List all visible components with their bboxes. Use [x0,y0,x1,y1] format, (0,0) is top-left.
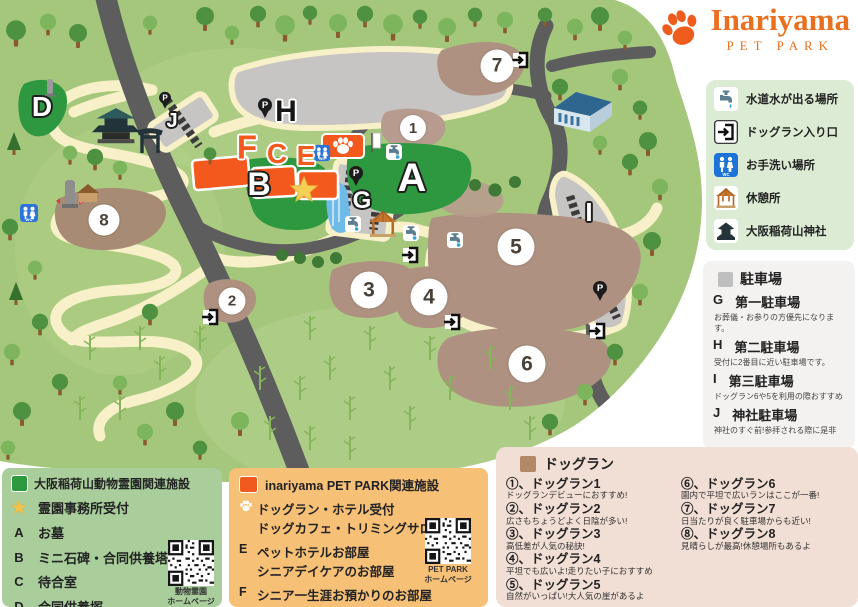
parking-name: 神社駐車場 [732,405,797,424]
parking-item-i: I第三駐車場 ドッグラン6や5を利用の際おすすめ [710,371,848,402]
parking-note: お葬儀・お参りの方優先になります。 [714,312,848,334]
map-label-d[interactable]: D [32,93,52,121]
parking-legend-title: 駐車場 [740,269,782,289]
dogrun-entrance-icon [512,53,527,67]
map-label-f[interactable]: F [237,131,257,164]
cemetery-name: 合同供養塚 [38,597,103,607]
dogrun-title: ⑦、ドッグラン7 [681,502,848,516]
map-marker-dogrun-3[interactable]: 3 [351,272,388,309]
parking-legend-panel: 駐車場 G第一駐車場 お葬儀・お参りの方優先になります。 H第二駐車場 受付に2… [703,261,855,449]
dogrun-title: ①、ドッグラン1 [506,477,673,491]
dogrun-entrance-icon [202,310,217,324]
dogrun-note: 日当たりが良く駐車場からも近い! [681,517,848,527]
dogrun-title: ⑥、ドッグラン6 [681,477,848,491]
map-label-i[interactable]: I [585,199,592,225]
petpark-name: シニア一生涯お預かりのお部屋 [257,585,432,604]
map-label-j[interactable]: J [166,111,177,131]
parking-code: H [713,337,722,356]
restroom-icon [20,204,38,222]
legend-item-water: 水道水が出る場所 [714,87,846,111]
map-marker-dogrun-6[interactable]: 6 [509,346,546,383]
dogrun-color-swatch [520,456,536,472]
dogrun-note: 高低差が人気の秘訣! [506,542,673,552]
logo-subtitle: PET PARK [711,38,851,54]
parking-code: J [713,405,720,424]
parking-item-h: H第二駐車場 受付に2番目に近い駐車場です。 [710,337,848,368]
cemetery-color-swatch [11,475,28,492]
petpark-name2: シニアデイケアのお部屋 [257,561,395,580]
parking-item-g: G第一駐車場 お葬儀・お参りの方優先になります。 [710,292,848,334]
qr-code-pet-park [425,518,471,564]
legend-label: ドッグラン入り口 [746,124,838,140]
facility-legend-panel: 水道水が出る場所 ドッグラン入り口 WC お手洗い場所 休憩所 大阪稲荷山神社 [706,80,854,250]
dogrun-title: ⑧、ドッグラン8 [681,527,848,541]
petpark-legend-header: inariyama PET PARK関連施設 [239,475,478,494]
map-label-c[interactable]: C [267,140,287,168]
cemetery-name: 待合室 [38,572,77,591]
legend-item-entrance: ドッグラン入り口 [714,120,846,144]
dogrun-title: ④、ドッグラン4 [506,552,673,566]
dogrun-entrance-icon [589,324,604,338]
dogrun-entrance-icon [714,120,738,144]
cemetery-name: 霊園事務所受付 [38,498,129,517]
faucet-icon [714,87,738,111]
cemetery-name: ミニ石碑・合同供養塔 [38,548,168,567]
star-icon: ★ [11,498,27,518]
restroom-icon: WC [714,153,738,177]
paw-icon [239,499,251,516]
parking-note: ドッグラン6や5を利用の際おすすめ [714,391,848,402]
dogrun-note: 平坦でも広いよ!走りたい子におすすめ [506,567,673,577]
dogrun-legend-col-1: ①、ドッグラン1ドッグランデビューにおすすめ! ②、ドッグラン2広さもちょうどよ… [506,477,673,603]
parking-note: 受付に2番目に近い駐車場です。 [714,357,848,368]
legend-label: 休憩所 [746,190,781,206]
qr-code-animal-cemetery [168,540,214,586]
legend-item-rest-area: 休憩所 [714,186,846,210]
petpark-legend-panel: inariyama PET PARK関連施設 ドッグラン・ホテル受付ドッグカフェ… [229,468,488,607]
cemetery-item-reception: ★霊園事務所受付 [11,498,213,518]
map-marker-dogrun-7[interactable]: 7 [481,50,514,83]
dogrun-legend-panel: ドッグラン ①、ドッグラン1ドッグランデビューにおすすめ! ②、ドッグラン2広さ… [496,447,858,607]
dogrun-note: 園内で平坦で広いランはここが一番! [681,491,848,501]
petpark-name: ドッグラン・ホテル受付 [257,499,445,518]
rest-area-icon [714,186,738,210]
parking-color-swatch [718,272,733,287]
petpark-legend-title: inariyama PET PARK関連施設 [265,475,439,494]
map-label-h[interactable]: H [275,97,297,127]
faucet-icon [345,216,361,232]
cemetery-name: お墓 [38,523,64,542]
cemetery-legend-panel: 大阪稲荷山動物霊園関連施設 ★霊園事務所受付 Aお墓 Bミニ石碑・合同供養塔 C… [2,468,222,607]
legend-item-restroom: WC お手洗い場所 [714,153,846,177]
map-label-g[interactable]: G [353,189,372,213]
parking-name: 第一駐車場 [735,292,800,311]
dogrun-entrance-icon [444,315,459,329]
parking-item-j: J神社駐車場 神社のすぐ前!参拝される際に是非 [710,405,848,436]
faucet-icon [447,232,463,248]
cemetery-legend-title: 大阪稲荷山動物霊園関連施設 [34,475,190,492]
shrine-icon [714,219,738,243]
dogrun-legend-col-2: ⑥、ドッグラン6園内で平坦で広いランはここが一番! ⑦、ドッグラン7日当たりが良… [681,477,848,603]
parking-legend-header: 駐車場 [710,269,848,289]
legend-label: お手洗い場所 [746,157,815,173]
parking-name: 第二駐車場 [734,337,799,356]
petpark-name: ペットホテルお部屋 [257,542,395,561]
map-marker-dogrun-2[interactable]: 2 [219,288,246,315]
parking-code: I [713,371,717,390]
qr-caption: PET PARK ホームページ [417,565,479,585]
dogrun-title: ③、ドッグラン3 [506,527,673,541]
dogrun-entrance-icon [402,248,417,262]
park-map-page: P WC [0,0,858,607]
dogrun-legend-header: ドッグラン [520,454,848,474]
parking-note: 神社のすぐ前!参拝される際に是非 [714,425,848,436]
dogrun-title: ⑤、ドッグラン5 [506,578,673,592]
map-label-e[interactable]: E [297,142,316,170]
faucet-icon [403,225,419,241]
dogrun-legend-title: ドッグラン [544,454,614,474]
parking-code: G [713,292,723,311]
logo-title: Inariyama [711,4,851,35]
dogrun-note: ドッグランデビューにおすすめ! [506,491,673,501]
dogrun-note: 自然がいっぱい!大人気の崖があるよ [506,592,673,602]
petpark-item-f: F シニア一生涯お預かりのお部屋 [239,585,478,604]
dogrun-note: 広さもちょうどよく日陰が多い! [506,517,673,527]
dogrun-note: 見晴らしが最高!休憩場所もあるよ [681,542,848,552]
legend-label: 大阪稲荷山神社 [746,223,827,239]
map-label-b[interactable]: B [247,168,270,200]
legend-label: 水道水が出る場所 [746,91,838,107]
map-marker-dogrun-5[interactable]: 5 [498,229,535,266]
paw-icon [657,5,705,53]
map-marker-dogrun-8[interactable]: 8 [89,205,120,236]
qr-caption: 動物霊園 ホームページ [160,587,222,607]
legend-item-shrine: 大阪稲荷山神社 [714,219,846,243]
logo: Inariyama PET PARK [657,4,851,54]
map-label-a[interactable]: A [398,158,427,198]
restroom-icon [314,145,330,161]
petpark-color-swatch [239,476,258,493]
map-marker-dogrun-1[interactable]: 1 [400,115,426,141]
cemetery-legend-header: 大阪稲荷山動物霊園関連施設 [11,475,213,492]
petpark-name2: ドッグカフェ・トリミングサロン [257,518,445,537]
parking-name: 第三駐車場 [729,371,794,390]
dogrun-title: ②、ドッグラン2 [506,502,673,516]
svg-text:WC: WC [723,172,730,177]
map-marker-dogrun-4[interactable]: 4 [411,279,448,316]
